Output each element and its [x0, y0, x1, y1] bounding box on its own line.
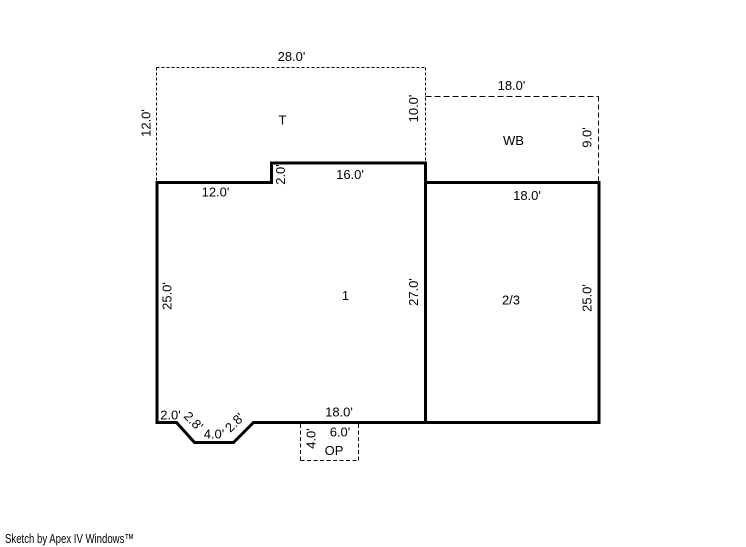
svg-text:18.0': 18.0' — [498, 78, 526, 93]
svg-text:2.0': 2.0' — [160, 408, 181, 423]
svg-text:2/3: 2/3 — [502, 293, 520, 308]
svg-text:18.0': 18.0' — [513, 188, 541, 203]
svg-text:Sketch by Apex IV Windows™: Sketch by Apex IV Windows™ — [5, 531, 134, 546]
svg-text:12.0': 12.0' — [139, 109, 154, 137]
svg-text:1: 1 — [342, 288, 349, 303]
svg-text:WB: WB — [503, 133, 524, 148]
svg-text:28.0': 28.0' — [278, 49, 306, 64]
svg-text:16.0': 16.0' — [336, 167, 364, 182]
svg-text:4.0': 4.0' — [304, 428, 319, 449]
svg-text:12.0': 12.0' — [202, 185, 230, 200]
svg-text:6.0': 6.0' — [330, 425, 351, 440]
svg-text:OP: OP — [325, 443, 344, 458]
svg-text:T: T — [279, 113, 287, 128]
svg-text:10.0': 10.0' — [406, 95, 421, 123]
svg-text:25.0': 25.0' — [160, 282, 175, 310]
svg-text:27.0': 27.0' — [406, 278, 421, 306]
svg-text:2.0': 2.0' — [273, 164, 288, 185]
svg-text:18.0': 18.0' — [325, 405, 353, 420]
svg-text:25.0': 25.0' — [580, 284, 595, 312]
svg-text:4.0': 4.0' — [204, 427, 225, 442]
svg-text:9.0': 9.0' — [580, 127, 595, 148]
